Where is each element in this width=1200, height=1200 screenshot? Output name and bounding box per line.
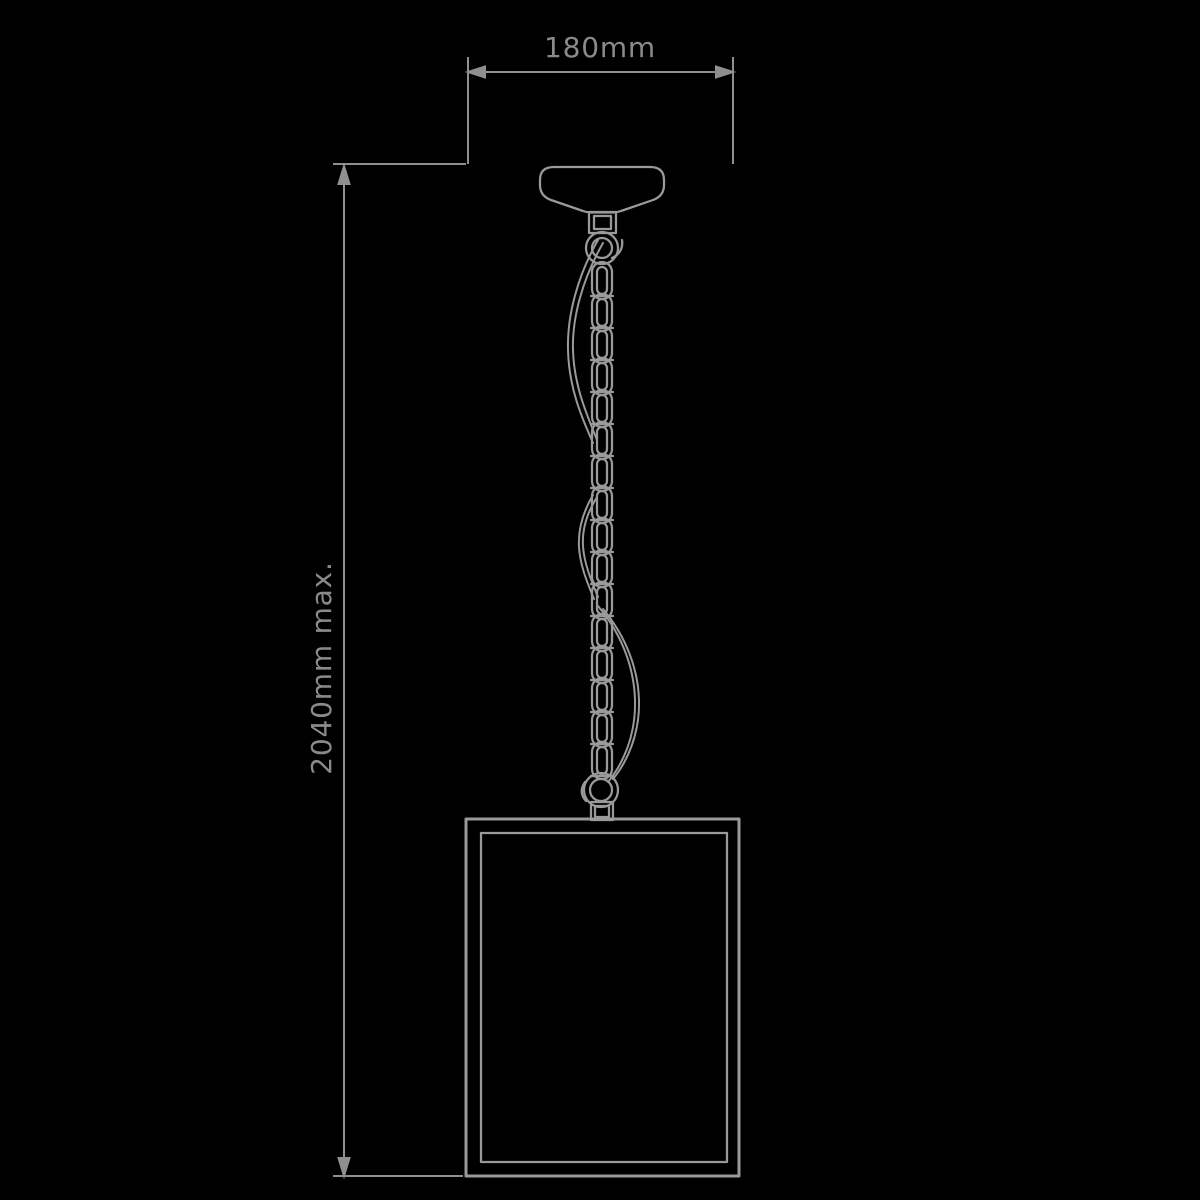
top-hook-outer xyxy=(586,232,618,264)
shade-outer xyxy=(466,819,739,1176)
arrow-down-icon xyxy=(339,1158,350,1176)
chain xyxy=(591,262,613,779)
dimension-diagram: 180mm 2040mm max. xyxy=(0,0,1200,1200)
pendant-dimension-drawing: 180mm 2040mm max. xyxy=(0,0,1200,1200)
arrow-left-icon xyxy=(468,67,485,78)
rose-connector-inner xyxy=(594,216,611,229)
bottom-hook-inner xyxy=(590,779,612,801)
cable-upper-bulge-inner xyxy=(573,243,603,440)
shade-inner xyxy=(481,833,727,1162)
width-dimension xyxy=(468,57,733,164)
arrow-right-icon xyxy=(716,67,733,78)
width-dimension-label: 180mm xyxy=(544,31,656,64)
arrow-up-icon xyxy=(339,166,350,184)
height-dimension-label: 2040mm max. xyxy=(305,561,338,774)
cable-lower-bulge-outer xyxy=(598,606,635,782)
cable-lower-bulge-inner xyxy=(603,609,639,779)
cable xyxy=(568,240,639,782)
ceiling-rose xyxy=(540,167,664,213)
pendant-light-artwork xyxy=(466,167,739,1176)
height-dimension xyxy=(333,164,466,1176)
top-hook-inner xyxy=(592,238,612,258)
